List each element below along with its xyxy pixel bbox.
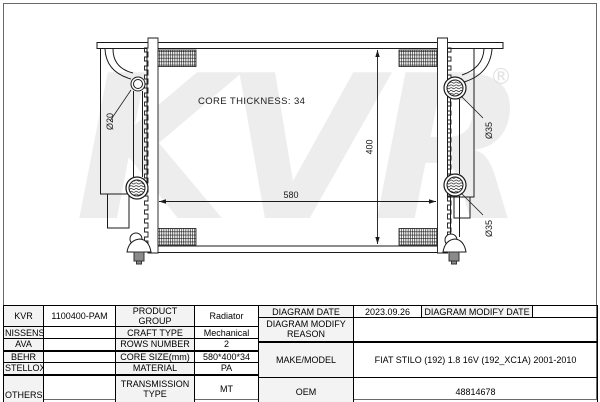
- left-port-diameter-label: Ø20: [105, 113, 115, 130]
- inlet-port-left: [131, 77, 145, 91]
- product-group-value-cell: Radiator: [195, 306, 259, 327]
- behr-ref-cell: [44, 351, 116, 363]
- craft-type-label-cell: CRAFT TYPE: [116, 327, 195, 339]
- transmission-type-label-cell: TRANSMISSION TYPE: [116, 375, 195, 402]
- core-size-label-cell: CORE SIZE(mm): [116, 351, 195, 363]
- oem-value-cell: 48814678: [354, 378, 598, 402]
- core-size-value-cell: 580*400*34: [195, 351, 259, 363]
- brand-nissens-cell: NISSENS: [4, 327, 44, 339]
- bottom-bar: [156, 246, 447, 253]
- diagram-modify-date-label-cell: DIAGRAM MODIFY DATE: [422, 306, 533, 318]
- diagram-modify-reason-value-cell: [354, 318, 598, 342]
- make-model-label-cell: MAKE/MODEL: [259, 342, 354, 378]
- brand-ava-cell: AVA: [4, 339, 44, 351]
- brand-kvr-cell: KVR: [4, 306, 44, 327]
- craft-type-value-cell: Mechanical: [195, 327, 259, 339]
- transmission-type-value-cell: MT: [195, 375, 259, 402]
- material-value-cell: PA: [195, 363, 259, 375]
- nissens-ref-cell: [44, 327, 116, 339]
- rows-number-label-cell: ROWS NUMBER: [116, 339, 195, 351]
- core-thickness-note: CORE THICKNESS: 34: [198, 96, 305, 107]
- rows-number-value-cell: 2: [195, 339, 259, 351]
- product-group-label-cell: PRODUCT GROUP: [116, 306, 195, 327]
- port-right-lower: [444, 174, 466, 196]
- radiator-spec-sheet: KVR ®: [0, 0, 600, 402]
- brand-behr-cell: BEHR: [4, 351, 44, 363]
- diagram-date-value-cell: 2023.09.26: [354, 306, 422, 318]
- port-right-upper: [444, 77, 466, 99]
- width-dimension-label: 580: [283, 190, 298, 200]
- stellox-ref-cell: [44, 363, 116, 375]
- kvr-watermark: KVR: [75, 33, 521, 266]
- diagram-date-label-cell: DIAGRAM DATE: [259, 306, 354, 318]
- diagram-modify-date-value-cell: [533, 306, 598, 318]
- part-number-cell: 1100400-PAM: [44, 306, 116, 327]
- height-dimension-label: 400: [365, 139, 375, 154]
- brand-stellox-cell: STELLOX: [4, 363, 44, 375]
- diagram-modify-reason-label-cell: DIAGRAM MODIFY REASON: [259, 318, 354, 342]
- material-label-cell: MATERIAL: [116, 363, 195, 375]
- port-left-lower: [126, 177, 148, 199]
- right-bottom-port-diameter-label: Ø35: [484, 220, 494, 237]
- right-top-port-diameter-label: Ø35: [484, 122, 494, 139]
- others-ref-cell: [44, 375, 116, 402]
- spec-table-left: KVR 1100400-PAM PRODUCT GROUP Radiator N…: [3, 305, 259, 402]
- spec-table-right: DIAGRAM DATE 2023.09.26 DIAGRAM MODIFY D…: [258, 305, 598, 402]
- make-model-value-cell: FIAT STILO (192) 1.8 16V (192_XC1A) 2001…: [354, 342, 598, 378]
- brand-others-cell: OTHERS: [4, 375, 44, 402]
- ava-ref-cell: [44, 339, 116, 351]
- oem-label-cell: OEM: [259, 378, 354, 402]
- registered-trademark-icon: ®: [490, 65, 512, 90]
